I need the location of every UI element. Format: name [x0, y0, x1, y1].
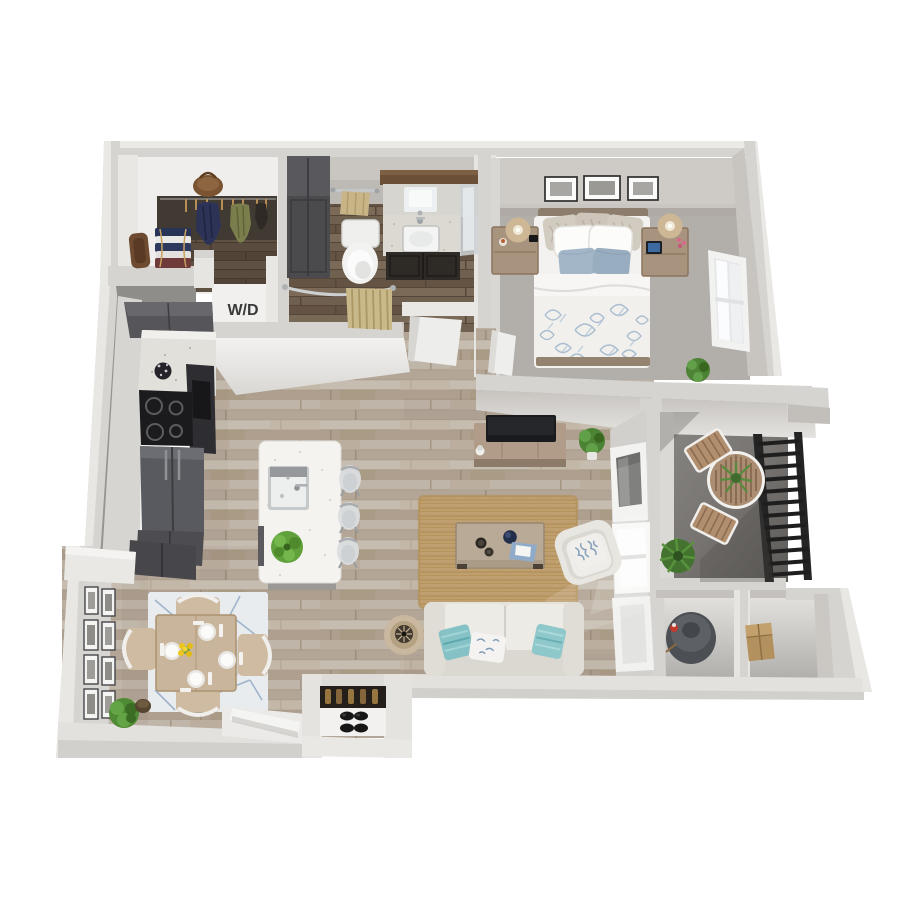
svg-text:W/D: W/D	[227, 302, 258, 319]
